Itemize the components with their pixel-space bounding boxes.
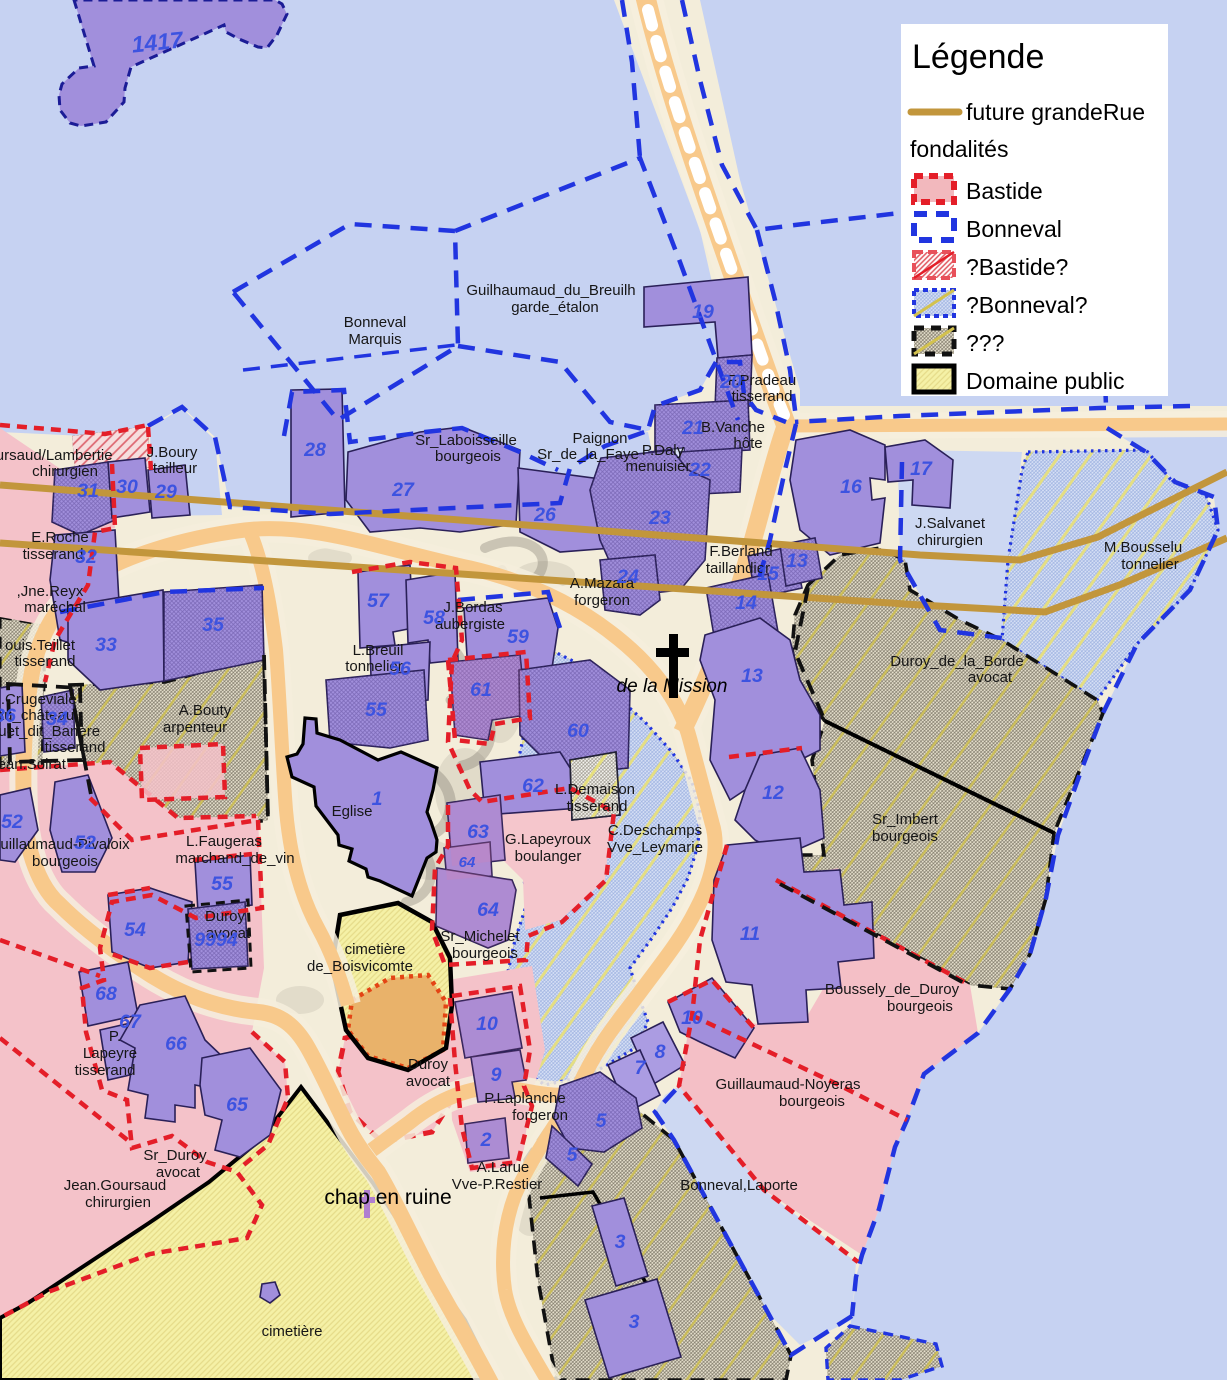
svg-text:Vve_Leymarie: Vve_Leymarie bbox=[607, 839, 703, 856]
svg-text:17: 17 bbox=[910, 458, 933, 480]
svg-text:36: 36 bbox=[0, 705, 16, 727]
svg-text:L.Demaison: L.Demaison bbox=[555, 781, 635, 798]
svg-text:29: 29 bbox=[154, 481, 177, 503]
svg-text:aubergiste: aubergiste bbox=[435, 616, 505, 633]
svg-text:27: 27 bbox=[391, 479, 415, 501]
svg-text:Bonneval: Bonneval bbox=[344, 314, 407, 331]
svg-text:Vve-P.Restier: Vve-P.Restier bbox=[452, 1176, 543, 1193]
svg-text:9: 9 bbox=[491, 1064, 502, 1086]
svg-text:chirurgien: chirurgien bbox=[32, 463, 98, 480]
svg-text:J.Salvanet: J.Salvanet bbox=[915, 515, 986, 532]
svg-text:28: 28 bbox=[303, 439, 326, 461]
svg-text:chap en ruine: chap en ruine bbox=[324, 1186, 451, 1209]
svg-text:forgeron: forgeron bbox=[512, 1107, 568, 1124]
svg-text:60: 60 bbox=[567, 720, 589, 742]
svg-text:58: 58 bbox=[423, 607, 445, 629]
svg-text:L.Breuil: L.Breuil bbox=[353, 642, 404, 659]
svg-text:14: 14 bbox=[735, 592, 757, 614]
svg-text:Boussely_de_Duroy: Boussely_de_Duroy bbox=[825, 981, 960, 998]
svg-text:52: 52 bbox=[74, 832, 96, 854]
svg-text:fondalités: fondalités bbox=[910, 136, 1008, 162]
svg-text:3: 3 bbox=[615, 1231, 626, 1253]
svg-text:55: 55 bbox=[365, 699, 388, 721]
svg-text:Duroy: Duroy bbox=[408, 1056, 449, 1073]
svg-text:Duroy: Duroy bbox=[205, 908, 246, 925]
svg-text:garde_étalon: garde_étalon bbox=[511, 299, 599, 316]
svg-text:Guilhaumaud_du_Breuilh: Guilhaumaud_du_Breuilh bbox=[466, 282, 635, 299]
svg-text:Paignon: Paignon bbox=[572, 430, 627, 447]
svg-text:23: 23 bbox=[648, 507, 671, 529]
svg-text:chirurgien: chirurgien bbox=[85, 1194, 151, 1211]
svg-text:ouis.Teillet: ouis.Teillet bbox=[5, 637, 76, 654]
svg-text:24: 24 bbox=[616, 566, 639, 588]
svg-text:tisserand: tisserand bbox=[45, 739, 106, 756]
svg-text:67: 67 bbox=[119, 1011, 142, 1033]
svg-text:A.Larue: A.Larue bbox=[477, 1159, 530, 1176]
svg-text:64: 64 bbox=[477, 899, 499, 921]
svg-text:tonnelier: tonnelier bbox=[1121, 556, 1179, 573]
svg-text:?Bastide?: ?Bastide? bbox=[966, 254, 1068, 280]
svg-text:57: 57 bbox=[367, 590, 390, 612]
svg-text:G.Lapeyroux: G.Lapeyroux bbox=[505, 831, 591, 848]
svg-text:E.Roche: E.Roche bbox=[31, 529, 89, 546]
svg-text:bourgeois: bourgeois bbox=[872, 828, 938, 845]
svg-text:31: 31 bbox=[77, 480, 99, 502]
svg-text:Jean.Soirat: Jean.Soirat bbox=[0, 756, 67, 773]
svg-text:Jean.Goursaud: Jean.Goursaud bbox=[64, 1177, 167, 1194]
svg-text:10: 10 bbox=[681, 1007, 703, 1029]
svg-text:avocat: avocat bbox=[406, 1073, 451, 1090]
svg-text:12: 12 bbox=[762, 782, 784, 804]
svg-text:J.Bordas: J.Bordas bbox=[443, 599, 502, 616]
svg-text:26: 26 bbox=[533, 504, 556, 526]
svg-text:55: 55 bbox=[211, 873, 234, 895]
svg-text:Bonneval: Bonneval bbox=[966, 216, 1062, 242]
svg-text:52: 52 bbox=[1, 811, 23, 833]
svg-text:marchand_de_vin: marchand_de_vin bbox=[175, 850, 294, 867]
svg-text:chirurgien: chirurgien bbox=[917, 532, 983, 549]
svg-text:33: 33 bbox=[95, 634, 117, 656]
svg-text:J.Boury: J.Boury bbox=[147, 444, 198, 461]
svg-text:Domaine public: Domaine public bbox=[966, 368, 1125, 394]
svg-text:32: 32 bbox=[75, 546, 97, 568]
svg-text:B.Vanche: B.Vanche bbox=[701, 419, 765, 436]
svg-text:1: 1 bbox=[372, 788, 383, 810]
svg-text:oursaud/Lambertie: oursaud/Lambertie bbox=[0, 447, 113, 464]
svg-text:Sr_Duroy: Sr_Duroy bbox=[143, 1147, 207, 1164]
svg-text:59: 59 bbox=[507, 626, 529, 648]
svg-text:C.Deschamps: C.Deschamps bbox=[608, 822, 702, 839]
svg-text:Guillaumaud-Noyeras: Guillaumaud-Noyeras bbox=[715, 1076, 860, 1093]
svg-text:hôte: hôte bbox=[733, 435, 762, 452]
svg-text:Lapeyre: Lapeyre bbox=[83, 1045, 137, 1062]
svg-text:P.Daly: P.Daly bbox=[642, 442, 685, 459]
svg-text:uillaumaud-Pivaloix: uillaumaud-Pivaloix bbox=[0, 836, 130, 853]
svg-text:tisserand: tisserand bbox=[15, 653, 76, 670]
svg-text:5: 5 bbox=[596, 1110, 608, 1132]
svg-text:30: 30 bbox=[116, 476, 138, 498]
svg-text:Sr_Imbert: Sr_Imbert bbox=[872, 811, 939, 828]
svg-text:bourgeois: bourgeois bbox=[779, 1093, 845, 1110]
svg-text:54: 54 bbox=[124, 919, 146, 941]
svg-text:Bastide: Bastide bbox=[966, 178, 1043, 204]
svg-text:13: 13 bbox=[741, 665, 763, 687]
svg-text:Légende: Légende bbox=[912, 38, 1044, 76]
svg-text:19: 19 bbox=[692, 301, 714, 323]
svg-text:8: 8 bbox=[655, 1041, 666, 1063]
svg-text:68: 68 bbox=[95, 983, 117, 1005]
svg-text:Sr_Laboisseille: Sr_Laboisseille bbox=[415, 432, 517, 449]
svg-text:de_Boisvicomte: de_Boisvicomte bbox=[307, 958, 413, 975]
svg-text:avocat: avocat bbox=[968, 669, 1013, 686]
svg-text:bourgeois: bourgeois bbox=[452, 945, 518, 962]
svg-text:16: 16 bbox=[840, 476, 862, 498]
svg-text:arpenteur: arpenteur bbox=[163, 719, 227, 736]
svg-text:future grandeRue: future grandeRue bbox=[966, 99, 1145, 125]
svg-text:61: 61 bbox=[470, 679, 492, 701]
svg-text:F.Berland: F.Berland bbox=[709, 543, 772, 560]
svg-text:Marquis: Marquis bbox=[348, 331, 401, 348]
svg-text:9994: 9994 bbox=[194, 929, 238, 951]
svg-text:A.Bouty: A.Bouty bbox=[179, 702, 232, 719]
svg-text:?Bonneval?: ?Bonneval? bbox=[966, 292, 1088, 318]
svg-text:21: 21 bbox=[681, 417, 704, 439]
svg-text:13: 13 bbox=[786, 550, 808, 572]
svg-text:15: 15 bbox=[757, 563, 780, 585]
svg-text:Sr_Michelet: Sr_Michelet bbox=[440, 928, 520, 945]
svg-text:2: 2 bbox=[480, 1129, 492, 1151]
svg-text:Duroy_de_la_Borde: Duroy_de_la_Borde bbox=[890, 653, 1023, 670]
svg-text:35: 35 bbox=[202, 614, 225, 636]
svg-text:20: 20 bbox=[719, 371, 742, 393]
svg-text:???: ??? bbox=[966, 330, 1004, 356]
svg-text:3: 3 bbox=[629, 1311, 640, 1333]
svg-text:cimetière: cimetière bbox=[345, 941, 406, 958]
svg-text:Sr_de_la_Faye: Sr_de_la_Faye bbox=[537, 446, 639, 463]
svg-text:1417: 1417 bbox=[130, 26, 185, 57]
svg-text:22: 22 bbox=[688, 459, 711, 481]
svg-text:boulanger: boulanger bbox=[515, 848, 582, 865]
svg-text:11: 11 bbox=[740, 923, 760, 945]
svg-text:34: 34 bbox=[46, 708, 68, 730]
svg-text:56: 56 bbox=[389, 658, 411, 680]
svg-text:Bonneval,Laporte: Bonneval,Laporte bbox=[680, 1177, 798, 1194]
svg-text:tailleur: tailleur bbox=[153, 460, 197, 477]
svg-text:10: 10 bbox=[476, 1013, 498, 1035]
svg-text:menuisier: menuisier bbox=[625, 458, 690, 475]
svg-text:62: 62 bbox=[522, 775, 544, 797]
svg-text:de la Mission: de la Mission bbox=[617, 676, 728, 697]
svg-text:5: 5 bbox=[567, 1144, 579, 1166]
svg-text:64: 64 bbox=[459, 854, 476, 871]
svg-text:65: 65 bbox=[226, 1094, 249, 1116]
svg-text:tisserand: tisserand bbox=[75, 1062, 136, 1079]
svg-text:7: 7 bbox=[635, 1057, 647, 1079]
svg-text:L.Faugeras: L.Faugeras bbox=[186, 833, 262, 850]
svg-text:bourgeois: bourgeois bbox=[32, 853, 98, 870]
svg-text:cimetière: cimetière bbox=[262, 1323, 323, 1340]
svg-text:Eglise: Eglise bbox=[332, 803, 373, 820]
svg-text:forgeron: forgeron bbox=[574, 592, 630, 609]
svg-text:63: 63 bbox=[467, 821, 489, 843]
svg-text:maréchal: maréchal bbox=[24, 599, 86, 616]
svg-text:P.Laplanche: P.Laplanche bbox=[484, 1090, 565, 1107]
svg-text:,Jne.Reyx: ,Jne.Reyx bbox=[17, 583, 84, 600]
svg-text:M.Bousselu: M.Bousselu bbox=[1104, 539, 1182, 556]
svg-text:tisserand: tisserand bbox=[567, 798, 628, 815]
svg-text:bourgeois: bourgeois bbox=[887, 998, 953, 1015]
svg-text:66: 66 bbox=[165, 1033, 187, 1055]
svg-text:bourgeois: bourgeois bbox=[435, 448, 501, 465]
